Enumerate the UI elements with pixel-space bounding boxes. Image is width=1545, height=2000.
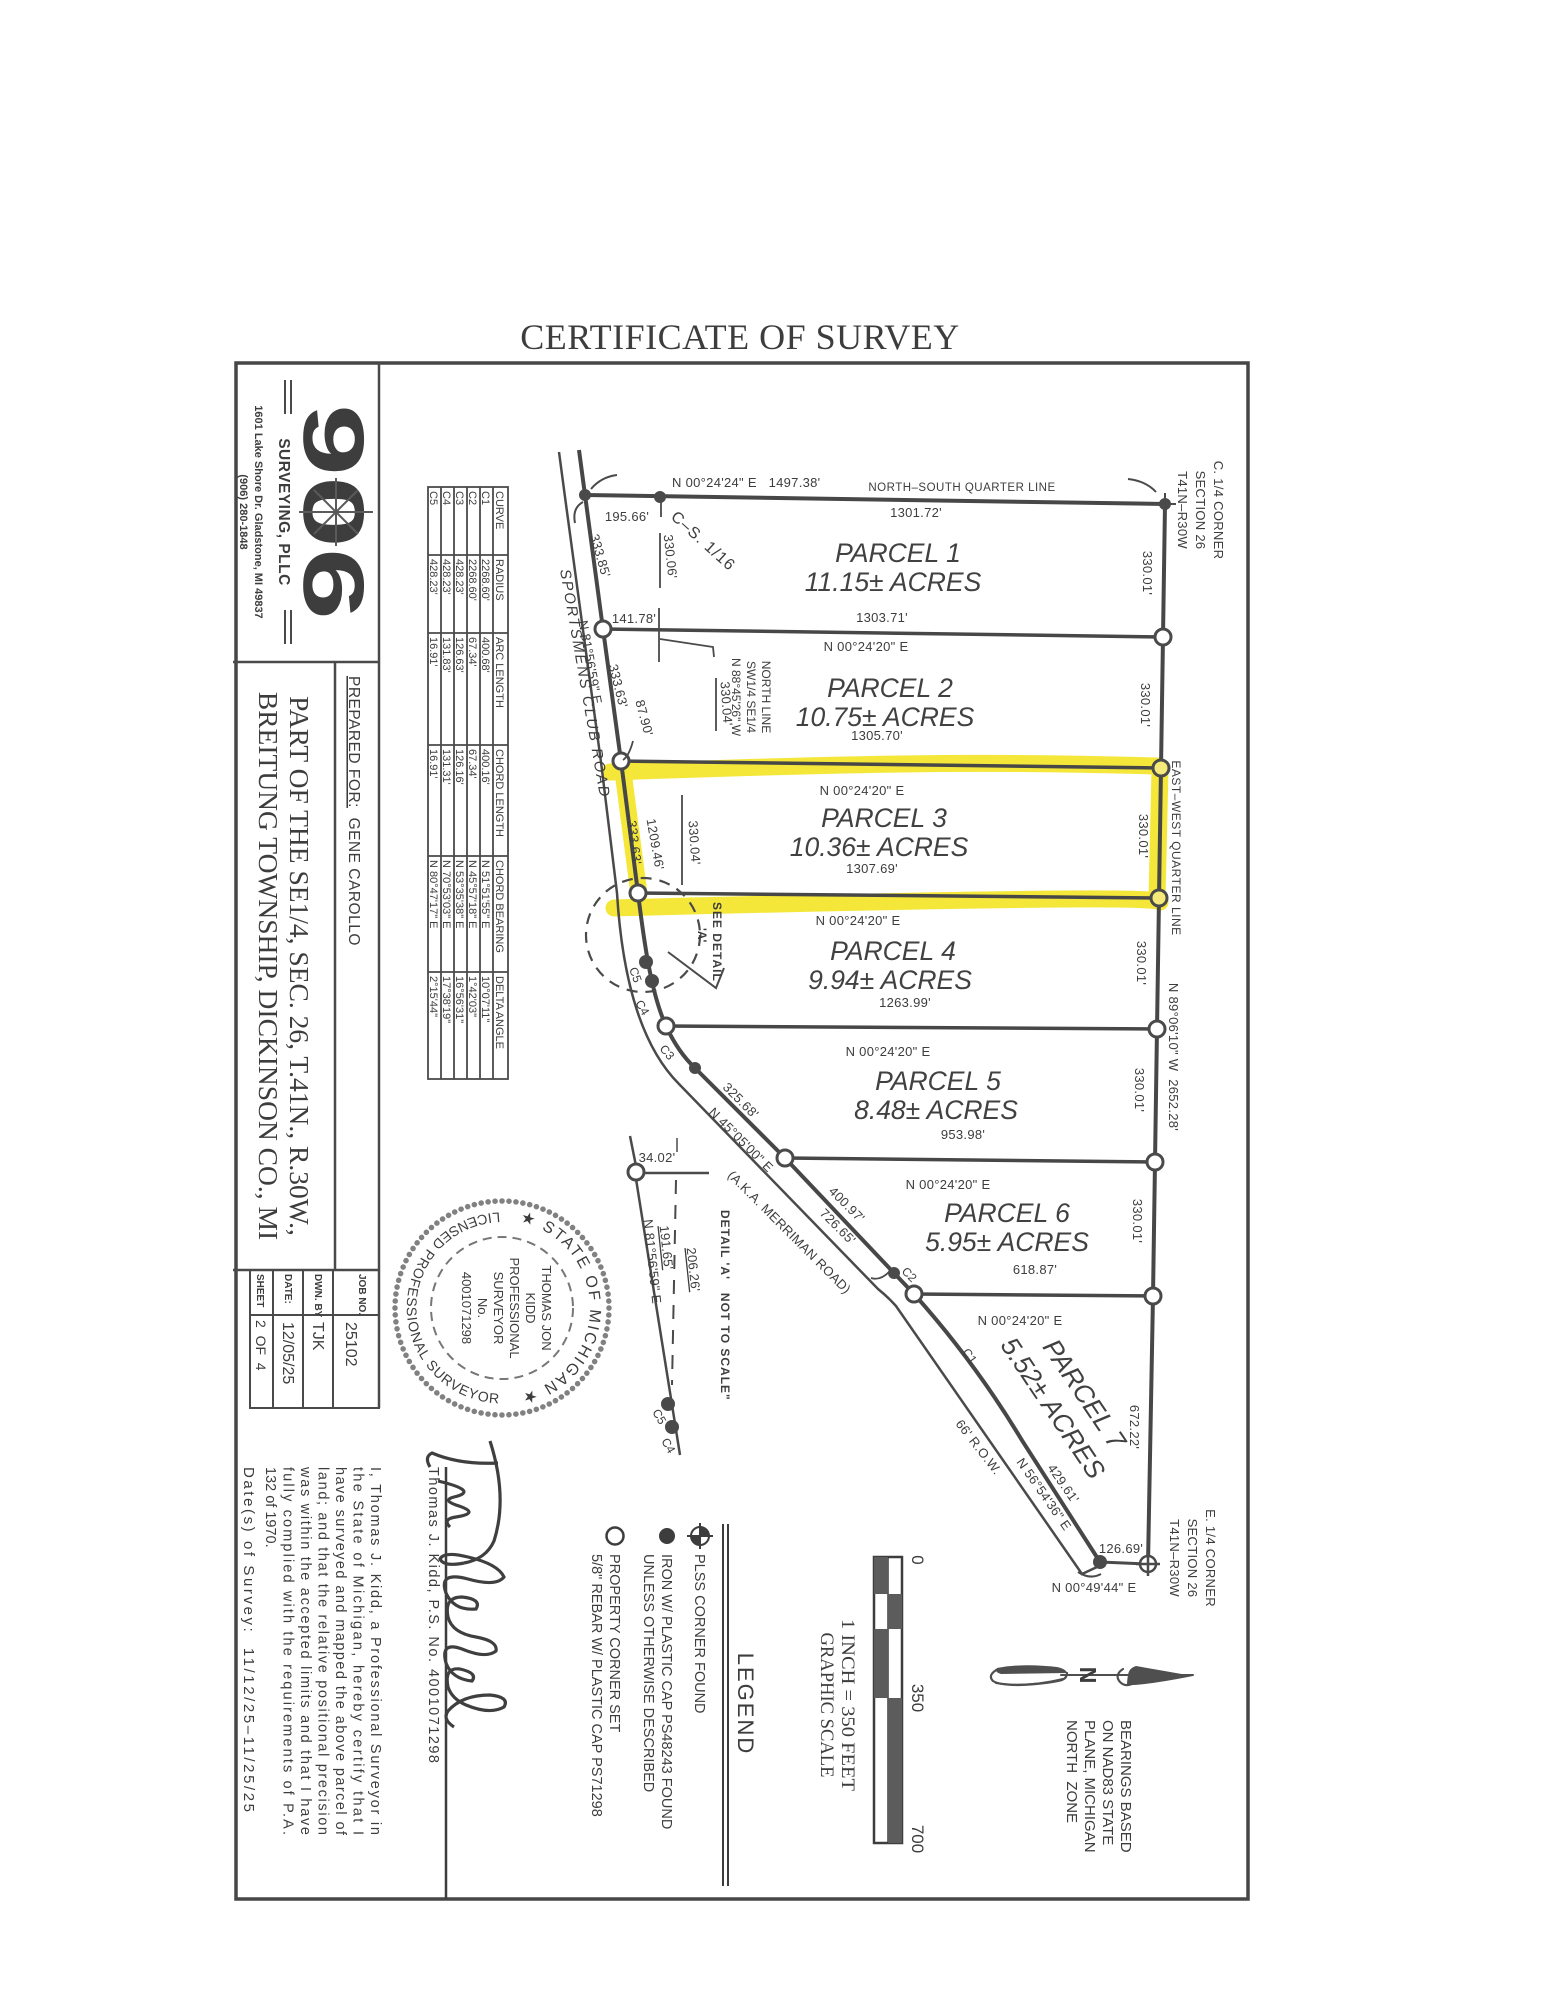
svg-text:SHEET: SHEET [254, 1274, 265, 1307]
svg-text:141.78': 141.78' [612, 611, 656, 626]
svg-text:206.26': 206.26' [684, 1247, 704, 1293]
svg-text:fully complied with the requir: fully complied with the requirements of … [280, 1467, 296, 1835]
svg-text:67.34': 67.34' [466, 637, 478, 667]
svg-text:1 INCH = 350 FEET: 1 INCH = 350 FEET [837, 1619, 858, 1791]
svg-text:N 45°57'18" E: N 45°57'18" E [466, 860, 478, 929]
svg-text:N 00°24'20" E: N 00°24'20" E [824, 639, 909, 654]
svg-text:PARCEL 5: PARCEL 5 [875, 1066, 1001, 1096]
svg-text:1307.69': 1307.69' [846, 861, 898, 876]
svg-text:SECTION 26: SECTION 26 [1185, 1519, 1200, 1598]
svg-text:N 00°24'24" E 1497.38': N 00°24'24" E 1497.38' [672, 475, 820, 490]
svg-text:N 80°47'17" E: N 80°47'17" E [427, 860, 439, 929]
svg-text:T41N–R30W: T41N–R30W [1175, 471, 1190, 549]
svg-text:PARCEL 6: PARCEL 6 [944, 1198, 1070, 1228]
svg-text:700: 700 [908, 1825, 927, 1853]
svg-text:LEGEND: LEGEND [733, 1653, 758, 1755]
svg-text:PLANE, MICHIGAN: PLANE, MICHIGAN [1081, 1720, 1098, 1853]
svg-text:17°38'19": 17°38'19" [440, 976, 452, 1023]
svg-text:330.04': 330.04' [685, 820, 703, 865]
svg-text:T41N–R30W: T41N–R30W [1167, 1519, 1182, 1597]
svg-text:Date(s) of Survey: 11/12/25–1: Date(s) of Survey: 11/12/25–11/25/25 [240, 1467, 257, 1812]
svg-text:GRAPHIC SCALE: GRAPHIC SCALE [816, 1633, 837, 1778]
svg-text:PLSS CORNER FOUND: PLSS CORNER FOUND [691, 1554, 707, 1714]
svg-text:2268.60': 2268.60' [479, 559, 491, 601]
svg-text:428.23': 428.23' [453, 559, 465, 595]
svg-text:was within the accepted limits: was within the accepted limits and that … [297, 1466, 313, 1835]
svg-text:1209.46': 1209.46' [644, 817, 668, 871]
svg-text:BREITUNG TOWNSHIP, DICKINSON C: BREITUNG TOWNSHIP, DICKINSON CO., MI [253, 692, 284, 1240]
svg-text:N 00°24'20" E: N 00°24'20" E [846, 1044, 931, 1059]
svg-text:C5: C5 [427, 491, 439, 505]
svg-text:350: 350 [908, 1684, 927, 1712]
svg-text:330.01': 330.01' [1138, 683, 1153, 727]
svg-text:PREPARED FOR: GENE CAROLLO: PREPARED FOR: GENE CAROLLO [345, 676, 362, 946]
svg-text:1303.71': 1303.71' [856, 610, 908, 625]
svg-text:330.01': 330.01' [1130, 1199, 1145, 1243]
svg-text:16.91': 16.91' [427, 749, 439, 779]
svg-text:PROPERTY CORNER SET: PROPERTY CORNER SET [606, 1554, 622, 1732]
svg-text:SEE DETAIL: SEE DETAIL [710, 902, 724, 982]
svg-text:ARC LENGTH: ARC LENGTH [493, 637, 505, 708]
svg-text:2°15'44": 2°15'44" [427, 976, 439, 1017]
svg-text:12/05/25: 12/05/25 [279, 1322, 296, 1384]
svg-text:No.: No. [475, 1298, 490, 1318]
svg-text:10.75± ACRES: 10.75± ACRES [796, 702, 975, 732]
svg-text:CURVE: CURVE [493, 491, 505, 529]
svg-text:333.85': 333.85' [587, 532, 614, 579]
svg-text:DELTA ANGLE: DELTA ANGLE [493, 976, 505, 1049]
svg-text:CERTIFICATE OF SURVEY: CERTIFICATE OF SURVEY [520, 317, 960, 357]
svg-text:1263.99': 1263.99' [879, 995, 931, 1010]
svg-text:have surveyed and mapped the a: have surveyed and mapped the above parce… [332, 1467, 348, 1836]
svg-text:SURVEYING, PLLC: SURVEYING, PLLC [275, 438, 292, 586]
svg-text:the State of Michigan, hereby: the State of Michigan, hereby certify th… [350, 1467, 366, 1835]
svg-text:330.06': 330.06' [661, 534, 681, 580]
svg-text:N 70°53'03" E: N 70°53'03" E [440, 860, 452, 929]
svg-text:N: N [1075, 1667, 1101, 1684]
svg-text:NORTH ZONE: NORTH ZONE [1063, 1720, 1080, 1823]
svg-text:195.66': 195.66' [605, 509, 649, 524]
svg-text:330.01': 330.01' [1140, 551, 1155, 595]
svg-text:400.16': 400.16' [479, 749, 491, 785]
svg-text:C4: C4 [632, 998, 652, 1019]
svg-text:2 OF 4: 2 OF 4 [253, 1320, 269, 1371]
svg-text:PART OF THE SE1/4, SEC. 26, T.: PART OF THE SE1/4, SEC. 26, T.41N., R.30… [284, 696, 315, 1236]
svg-text:KIDD: KIDD [523, 1292, 538, 1323]
svg-text:DATE:: DATE: [282, 1274, 293, 1304]
svg-text:THOMAS JON: THOMAS JON [539, 1265, 554, 1350]
svg-text:NORTH LINE: NORTH LINE [759, 661, 773, 733]
svg-text:34.02': 34.02' [639, 1150, 676, 1165]
svg-text:330.01': 330.01' [1136, 814, 1151, 858]
svg-text:428.23': 428.23' [427, 559, 439, 595]
svg-text:126.63': 126.63' [453, 637, 465, 673]
svg-text:RADIUS: RADIUS [493, 559, 505, 601]
svg-text:E. 1/4 CORNER: E. 1/4 CORNER [1203, 1509, 1218, 1607]
svg-text:N 51°51'55" E: N 51°51'55" E [479, 860, 491, 929]
svg-text:953.98': 953.98' [941, 1127, 985, 1142]
svg-text:PARCEL 2: PARCEL 2 [827, 673, 953, 703]
svg-text:BEARINGS BASED: BEARINGS BASED [1117, 1720, 1134, 1853]
svg-text:land; and that the relative po: land; and that the relative positional p… [315, 1467, 331, 1835]
svg-text:C4: C4 [440, 491, 452, 505]
svg-text:TJK: TJK [309, 1322, 326, 1351]
svg-text:N 89°06'10" W 2652.28': N 89°06'10" W 2652.28' [1166, 983, 1181, 1131]
svg-text:126.16': 126.16' [453, 749, 465, 785]
svg-text:NORTH–SOUTH QUARTER LINE: NORTH–SOUTH QUARTER LINE [868, 482, 1055, 494]
svg-text:EAST–WEST QUARTER LINE: EAST–WEST QUARTER LINE [1169, 760, 1183, 935]
svg-text:(906) 280-1848: (906) 280-1848 [237, 474, 249, 549]
svg-text:1301.72': 1301.72' [890, 505, 942, 520]
svg-text:N 00°24'20" E: N 00°24'20" E [978, 1313, 1063, 1328]
svg-text:330.01': 330.01' [1132, 1068, 1147, 1112]
svg-text:C1: C1 [479, 491, 491, 505]
svg-text:N 00°24'20" E: N 00°24'20" E [816, 913, 901, 928]
svg-text:11.15± ACRES: 11.15± ACRES [805, 567, 982, 597]
svg-text:SECTION 26: SECTION 26 [1193, 471, 1208, 550]
svg-text:131.83': 131.83' [440, 637, 452, 673]
svg-text:CHORD BEARING: CHORD BEARING [493, 860, 505, 953]
svg-text:PARCEL 3: PARCEL 3 [821, 803, 947, 833]
svg-text:DETAIL 'A' NOT TO SCALE": DETAIL 'A' NOT TO SCALE" [718, 1210, 732, 1401]
svg-text:131.31': 131.31' [440, 749, 452, 785]
svg-text:672.22': 672.22' [1127, 1405, 1142, 1449]
svg-text:1°42'03": 1°42'03" [466, 976, 478, 1017]
svg-text:0: 0 [908, 1555, 927, 1564]
svg-text:2268.60': 2268.60' [466, 559, 478, 601]
svg-text:JOB NO.: JOB NO. [356, 1274, 367, 1315]
svg-text:C3: C3 [453, 491, 465, 505]
svg-text:67.34': 67.34' [466, 749, 478, 779]
svg-text:16.91': 16.91' [427, 637, 439, 667]
svg-text:428.23': 428.23' [440, 559, 452, 595]
svg-text:'A': 'A' [695, 928, 709, 943]
svg-text:C4: C4 [658, 1436, 678, 1457]
svg-text:PROFESSIONAL: PROFESSIONAL [507, 1257, 522, 1358]
svg-text:CHORD LENGTH: CHORD LENGTH [493, 749, 505, 837]
svg-text:SURVEYOR: SURVEYOR [491, 1272, 506, 1345]
svg-text:5/8" REBAR W/ PLASTIC CAP PS71: 5/8" REBAR W/ PLASTIC CAP PS71298 [588, 1554, 604, 1817]
svg-text:Thomas J. Kidd, P.S. No. 40010: Thomas J. Kidd, P.S. No. 4001071298 [425, 1467, 441, 1763]
svg-text:10°07'11": 10°07'11" [479, 976, 491, 1022]
svg-text:C1: C1 [960, 1346, 980, 1367]
svg-text:SPORTSMENS CLUB ROAD: SPORTSMENS CLUB ROAD [556, 568, 613, 800]
svg-text:1601 Lake Shore Dr. Gladstone,: 1601 Lake Shore Dr. Gladstone, MI 49837 [252, 405, 264, 618]
svg-text:PARCEL 1: PARCEL 1 [835, 538, 961, 568]
svg-text:I, Thomas J. Kidd, a Professio: I, Thomas J. Kidd, a Professional Survey… [367, 1467, 383, 1835]
svg-text:16°56'31": 16°56'31" [453, 976, 465, 1023]
svg-text:10.36± ACRES: 10.36± ACRES [790, 832, 969, 862]
svg-text:618.87': 618.87' [1013, 1262, 1057, 1277]
svg-text:330.01': 330.01' [1134, 941, 1149, 985]
svg-text:5.95± ACRES: 5.95± ACRES [925, 1227, 1089, 1257]
svg-text:ON NAD83 STATE: ON NAD83 STATE [1099, 1720, 1116, 1845]
svg-text:N 00°24'20" E: N 00°24'20" E [906, 1177, 991, 1192]
svg-text:C. 1/4 CORNER: C. 1/4 CORNER [1211, 461, 1226, 560]
svg-text:8.48± ACRES: 8.48± ACRES [854, 1095, 1018, 1125]
svg-text:126.69': 126.69' [1099, 1541, 1143, 1556]
svg-text:IRON W/ PLASTIC CAP PS48243 FO: IRON W/ PLASTIC CAP PS48243 FOUND [658, 1554, 674, 1829]
svg-text:SW1/4 SE1/4: SW1/4 SE1/4 [744, 661, 758, 733]
svg-text:DWN. BY: DWN. BY [312, 1274, 323, 1318]
svg-text:N 53°35'38" E: N 53°35'38" E [453, 860, 465, 929]
svg-text:132 of 1970.: 132 of 1970. [262, 1467, 278, 1548]
svg-text:N 00°49'44" E: N 00°49'44" E [1052, 1580, 1137, 1595]
svg-text:N 88°45'26" W: N 88°45'26" W [729, 658, 743, 737]
svg-text:4001071298: 4001071298 [459, 1272, 474, 1344]
svg-text:87.90': 87.90' [632, 698, 656, 737]
svg-text:9.94± ACRES: 9.94± ACRES [808, 965, 972, 995]
svg-text:400.68': 400.68' [479, 637, 491, 673]
svg-text:PARCEL 4: PARCEL 4 [830, 936, 956, 966]
svg-text:UNLESS OTHERWISE DESCRIBED: UNLESS OTHERWISE DESCRIBED [640, 1554, 656, 1792]
svg-text:N 00°24'20" E: N 00°24'20" E [820, 783, 905, 798]
svg-text:25102: 25102 [342, 1322, 359, 1367]
svg-text:C2: C2 [466, 491, 478, 505]
